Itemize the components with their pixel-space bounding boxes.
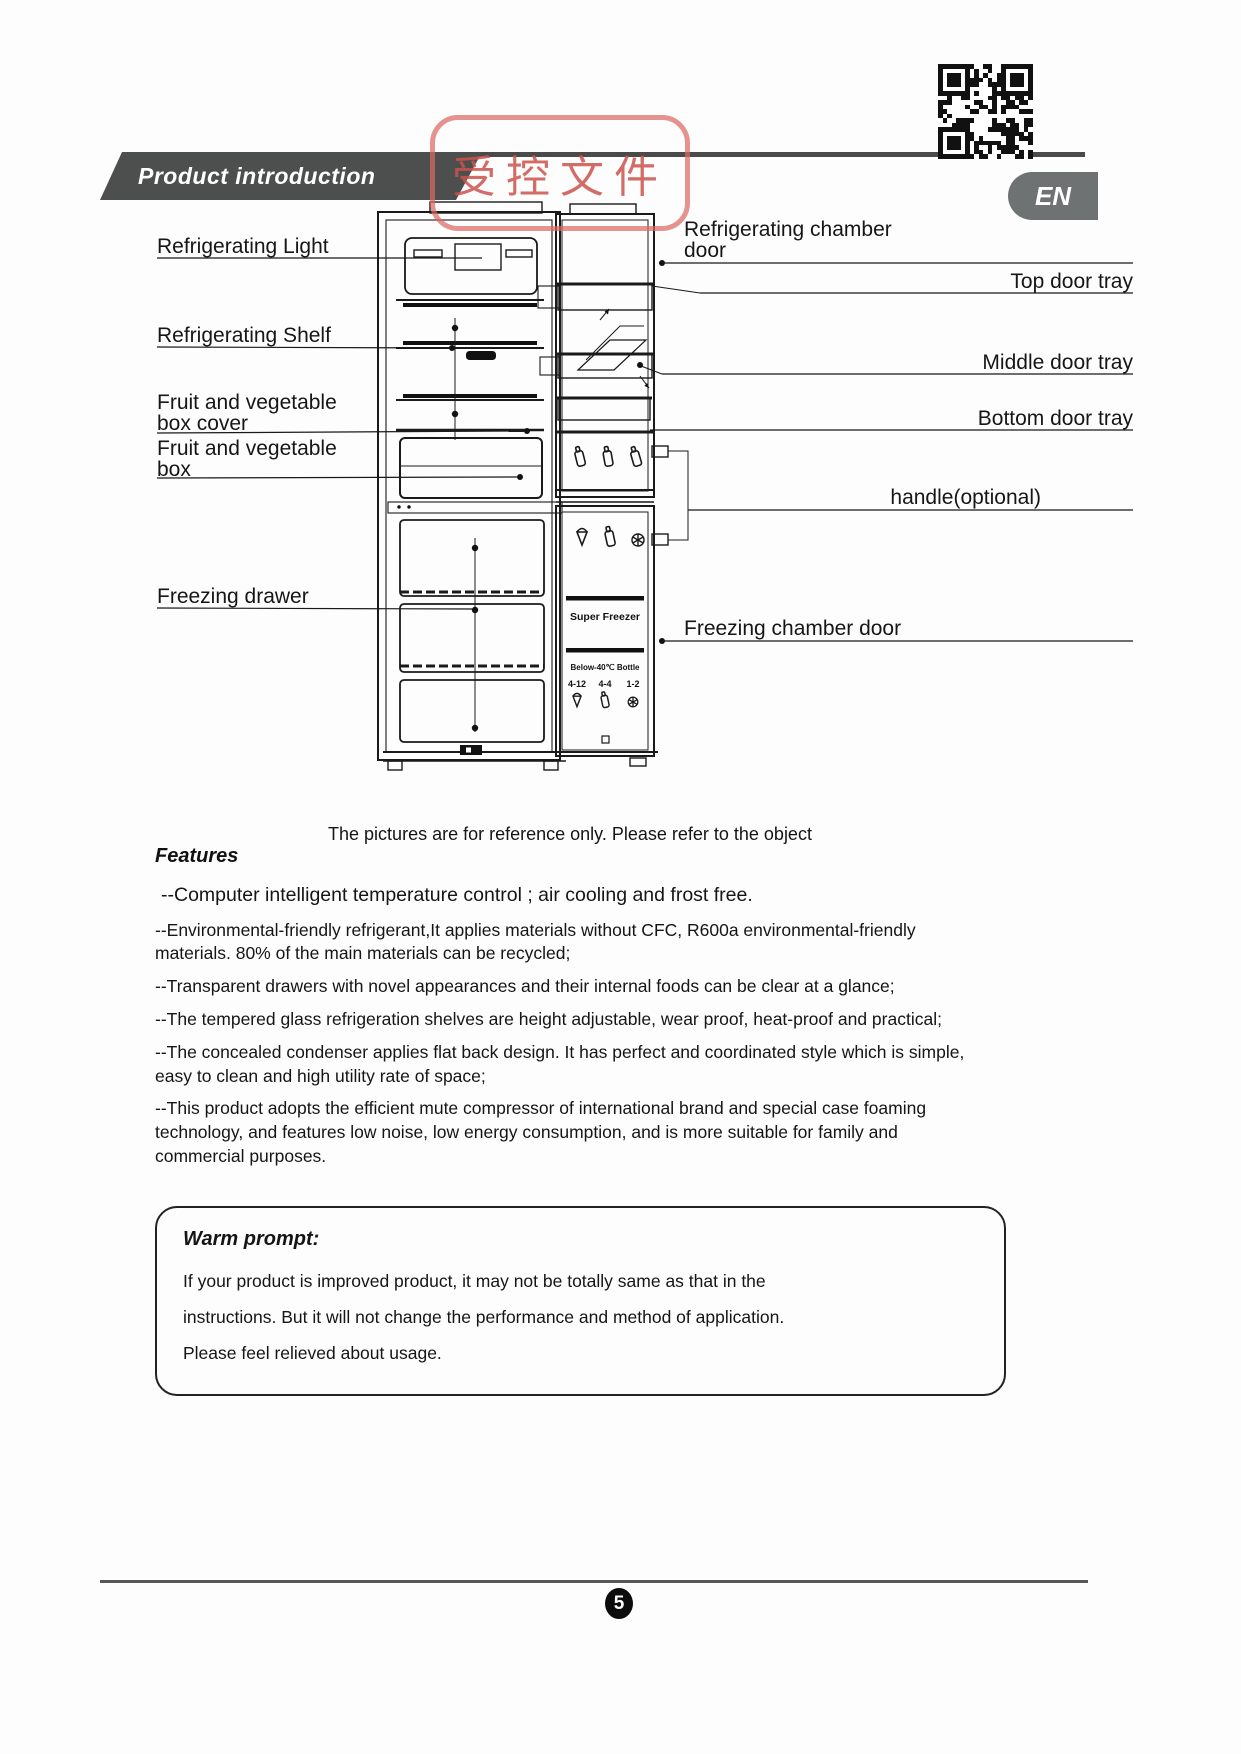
fruit-vegetable-box: [400, 438, 542, 498]
stamp-text: 受控文件: [452, 141, 668, 205]
features-section: Features --Computer intelligent temperat…: [155, 845, 985, 1178]
feature-lead: --Computer intelligent temperature contr…: [161, 882, 985, 909]
fridge-diagram: Super Freezer Below-40℃ Bottle 4-12 4-4 …: [100, 200, 1140, 840]
refrigerating-chamber-door: [538, 214, 654, 502]
temp-range-3: 1-2: [626, 679, 639, 689]
leader-lines-left: [157, 258, 530, 613]
feature-item: --This product adopts the efficient mute…: [155, 1097, 985, 1168]
features-heading: Features: [155, 845, 985, 868]
label-refrigerating-chamber-door: Refrigerating chamber door: [684, 219, 924, 262]
temp-range-2: 4-4: [598, 679, 611, 689]
cabinet-base: [383, 745, 658, 770]
leader-lines-right: [637, 260, 1133, 644]
freezer-drawers: [400, 520, 544, 742]
label-bottom-door-tray: Bottom door tray: [978, 408, 1133, 429]
label-middle-door-tray: Middle door tray: [982, 352, 1133, 373]
label-freezing-drawer: Freezing drawer: [157, 586, 309, 607]
label-refrigerating-shelf: Refrigerating Shelf: [157, 325, 331, 346]
label-handle-optional: handle(optional): [890, 487, 1041, 508]
section-banner: Product introduction: [100, 152, 482, 200]
warm-prompt-title: Warm prompt:: [183, 1228, 978, 1251]
controlled-document-stamp: 受控文件: [430, 115, 690, 231]
bottle-note-label: Below-40℃ Bottle: [571, 663, 641, 672]
label-refrigerating-light: Refrigerating Light: [157, 236, 329, 257]
footer-rule: [100, 1580, 1088, 1583]
label-fruit-box-cover: Fruit and vegetable box cover: [157, 392, 369, 435]
door-handle: [652, 446, 688, 545]
label-freezing-chamber-door: Freezing chamber door: [684, 618, 901, 639]
warm-prompt-box: Warm prompt: If your product is improved…: [155, 1206, 1006, 1396]
page-number-badge: 5: [605, 1588, 633, 1619]
freezing-chamber-door: Super Freezer Below-40℃ Bottle 4-12 4-4 …: [556, 506, 654, 756]
page-number: 5: [614, 1593, 625, 1615]
feature-item: --The concealed condenser applies flat b…: [155, 1041, 985, 1089]
temp-range-1: 4-12: [568, 679, 586, 689]
qr-code: [938, 64, 1033, 159]
warm-prompt-line: If your product is improved product, it …: [183, 1271, 978, 1292]
label-top-door-tray: Top door tray: [1010, 271, 1133, 292]
shelf-handle: [466, 351, 496, 360]
super-freezer-label: Super Freezer: [570, 611, 640, 623]
feature-item: --Transparent drawers with novel appeara…: [155, 975, 985, 999]
refrigerator-interior: [388, 238, 562, 513]
page-title: Product introduction: [100, 163, 375, 190]
feature-item: --The tempered glass refrigeration shelv…: [155, 1008, 985, 1032]
warm-prompt-line: Please feel relieved about usage.: [183, 1343, 978, 1364]
label-fruit-box: Fruit and vegetable box: [157, 438, 369, 481]
top-door-tray: [558, 284, 652, 310]
reference-caption: The pictures are for reference only. Ple…: [250, 824, 890, 845]
cabinet-outline: [378, 202, 636, 760]
feature-item: --Environmental-friendly refrigerant,It …: [155, 919, 985, 967]
warm-prompt-line: instructions. But it will not change the…: [183, 1307, 978, 1328]
